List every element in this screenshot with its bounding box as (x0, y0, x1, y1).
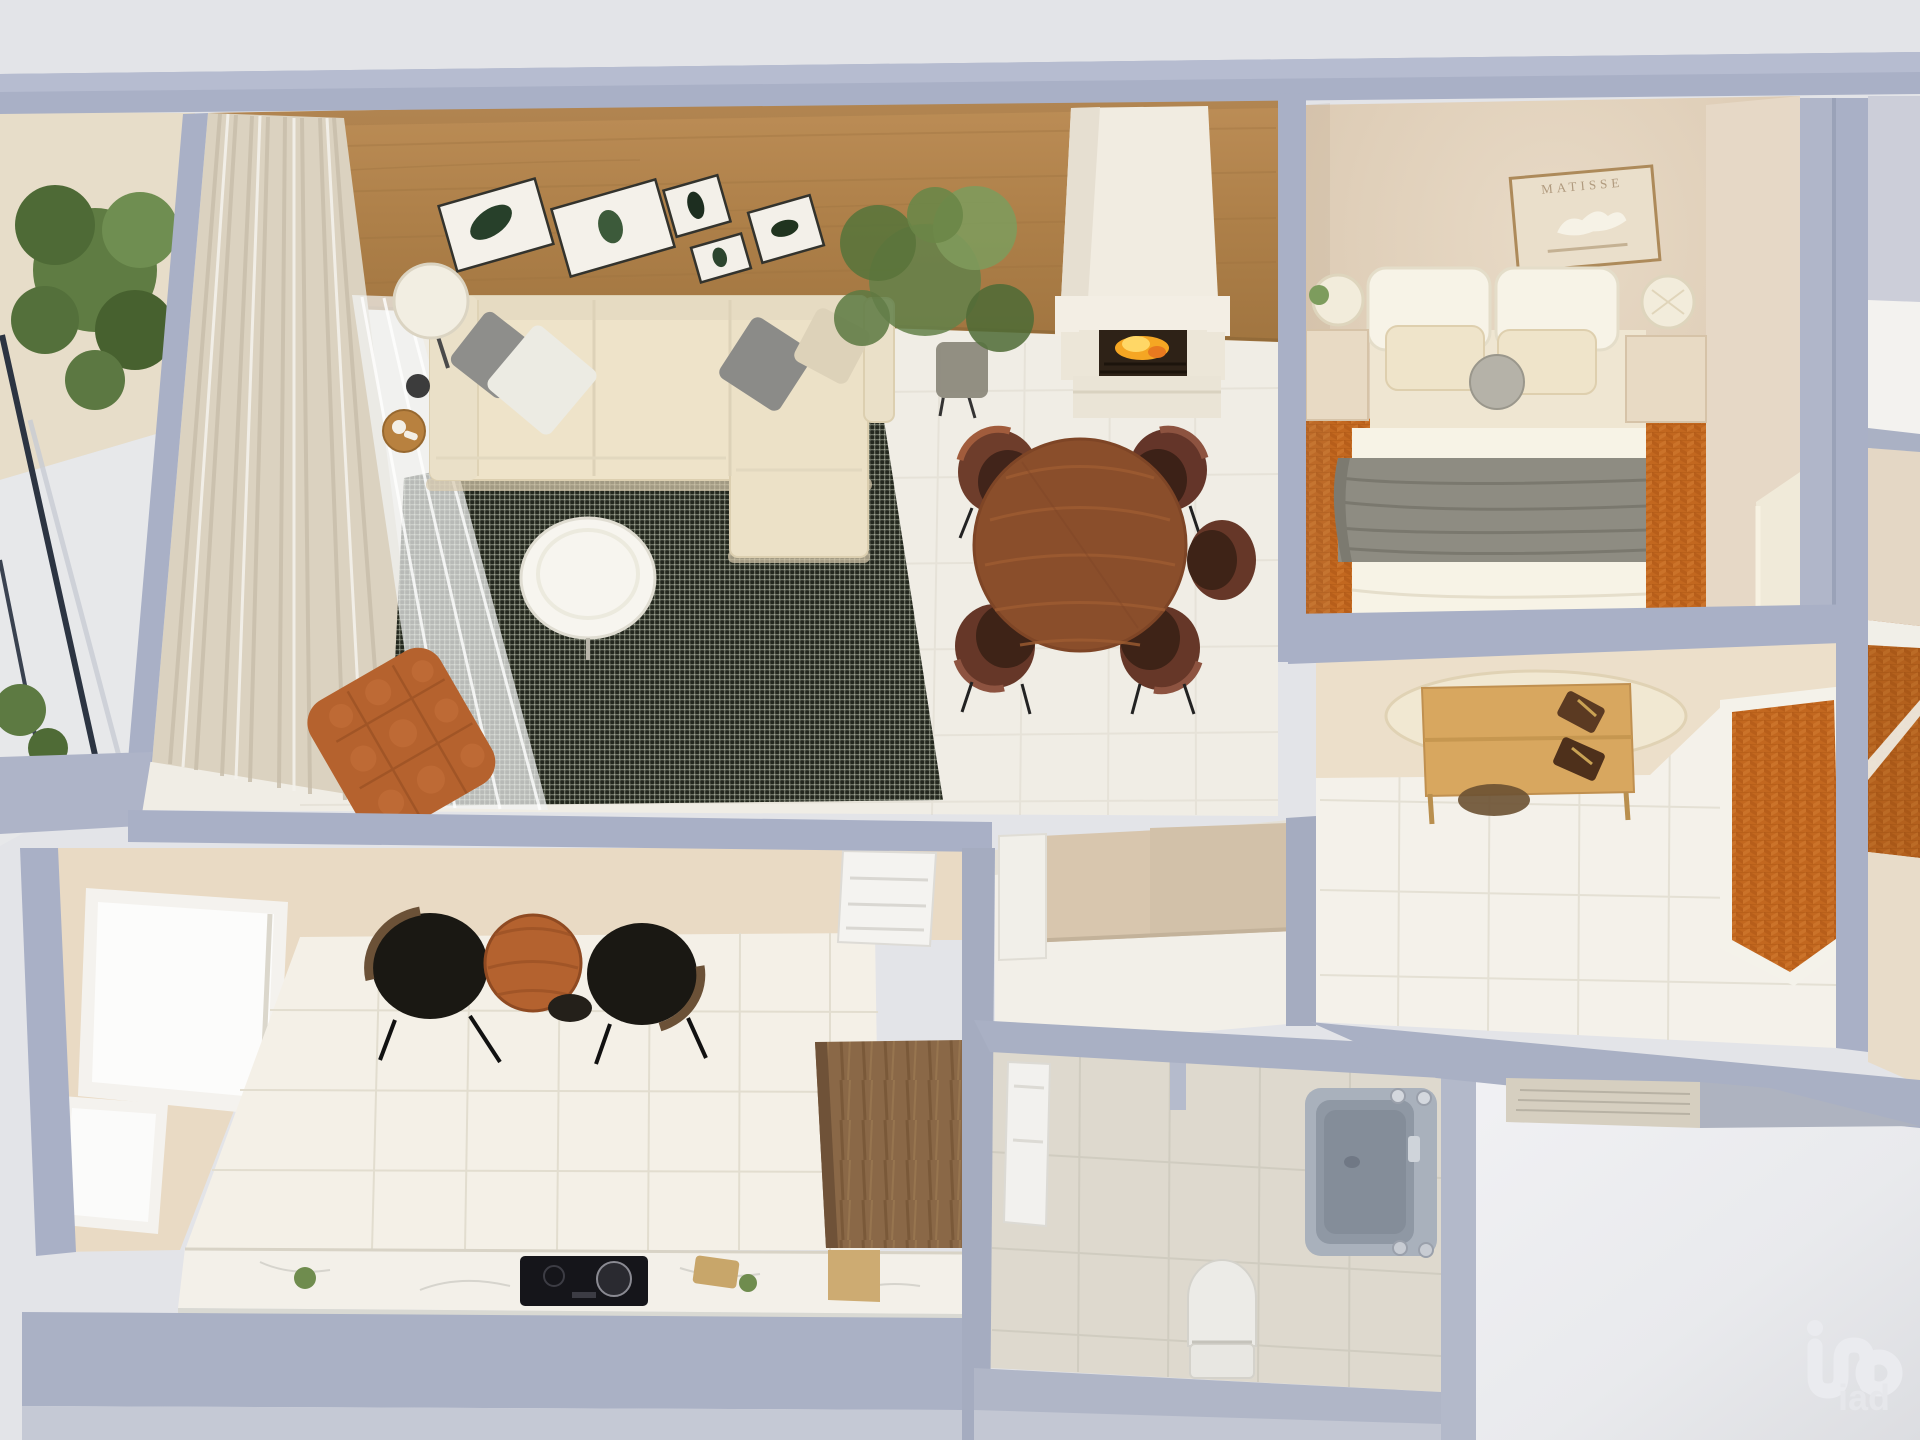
svg-text:iad: iad (1838, 1377, 1890, 1418)
